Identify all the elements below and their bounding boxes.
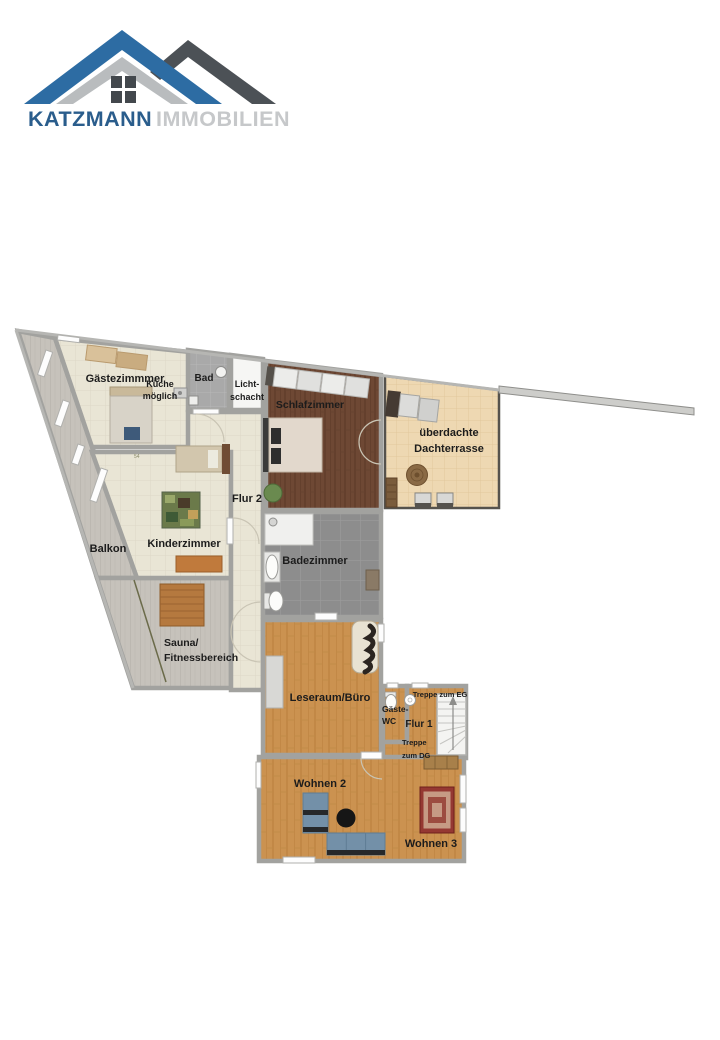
coffee-table-icon [337, 809, 356, 828]
room-label-wohnen2: Wohnen 2 [294, 778, 346, 790]
sink-icon [266, 555, 278, 579]
chaise-sofa-icon [352, 621, 378, 673]
brand-name-primary: KATZMANN [28, 107, 152, 131]
room-label-lichtschacht-line1: Licht- [235, 379, 260, 389]
room-label-kueche-line1: Küche [146, 379, 174, 389]
door-opening [412, 683, 428, 688]
play-rug-icon [162, 492, 200, 528]
room-label-gaeste-wc-line2: WC [382, 716, 396, 726]
annotation-floor-mark: 54 [134, 454, 140, 460]
window [460, 808, 466, 832]
annotation-treppe-dg-line2: zum DG [402, 751, 431, 760]
floorplan-svg: KATZMANN IMMOBILIEN [0, 0, 720, 1040]
room-label-lichtschacht-line2: schacht [230, 392, 264, 402]
room-label-leseraum: Leseraum/Büro [290, 692, 371, 704]
bed-icon [263, 418, 322, 472]
room-label-balkon: Balkon [90, 543, 127, 555]
room-label-flur1: Flur 1 [405, 719, 433, 730]
sofa-icon [327, 833, 385, 855]
toilet-icon [264, 591, 283, 611]
room-label-wohnen3: Wohnen 3 [405, 838, 457, 850]
sink-icon [189, 396, 198, 405]
door-opening [387, 683, 398, 688]
room-label-flur2: Flur 2 [232, 493, 262, 505]
room-label-gaeste-wc-line1: Gäste- [382, 704, 409, 714]
room-label-dachterrasse-line1: überdachte [419, 427, 478, 439]
bed-icon [176, 444, 230, 474]
armchair-icon [303, 793, 328, 833]
wardrobe-icon [266, 656, 283, 708]
floorplan-drawing: Gästezimmmer Küche möglich Bad Licht- sc… [16, 330, 694, 863]
room-label-sauna-line2: Fitnessbereich [164, 652, 238, 664]
door-opening [378, 624, 384, 642]
logo-window-icon [111, 76, 136, 103]
door-opening [361, 752, 382, 759]
room-label-sauna-line1: Sauna/ [164, 637, 199, 649]
plant-icon [264, 484, 282, 502]
window [460, 775, 466, 803]
door-opening [315, 613, 337, 620]
window [256, 762, 261, 788]
door-opening [227, 518, 233, 544]
window [283, 857, 315, 863]
brand-logo: KATZMANN IMMOBILIEN [24, 30, 290, 131]
room-label-dachterrasse-line2: Dachterrasse [414, 443, 484, 455]
room-label-kinderzimmer: Kinderzimmer [147, 538, 221, 550]
oriental-rug-icon [420, 787, 454, 833]
brand-name-secondary: IMMOBILIEN [156, 107, 290, 131]
cabinet-icon [366, 570, 379, 590]
room-label-schlafzimmer: Schlafzimmer [276, 399, 344, 411]
house-roofs-icon [24, 30, 276, 104]
room-label-kueche-line2: möglich [143, 391, 178, 401]
room-label-badezimmer: Badezimmer [282, 555, 348, 567]
annotation-treppe-eg: Treppe zum EG [413, 690, 468, 699]
desk-icon [176, 556, 222, 572]
annotation-treppe-dg-line1: Treppe [402, 738, 427, 747]
floorplan-page: KATZMANN IMMOBILIEN [0, 0, 720, 1040]
room-label-bad: Bad [195, 373, 214, 384]
staircase-icon [437, 694, 466, 755]
door-opening [193, 409, 219, 414]
shelf-icon [386, 478, 397, 507]
shower-head-icon [216, 367, 227, 378]
roof-edge-line [499, 386, 694, 415]
